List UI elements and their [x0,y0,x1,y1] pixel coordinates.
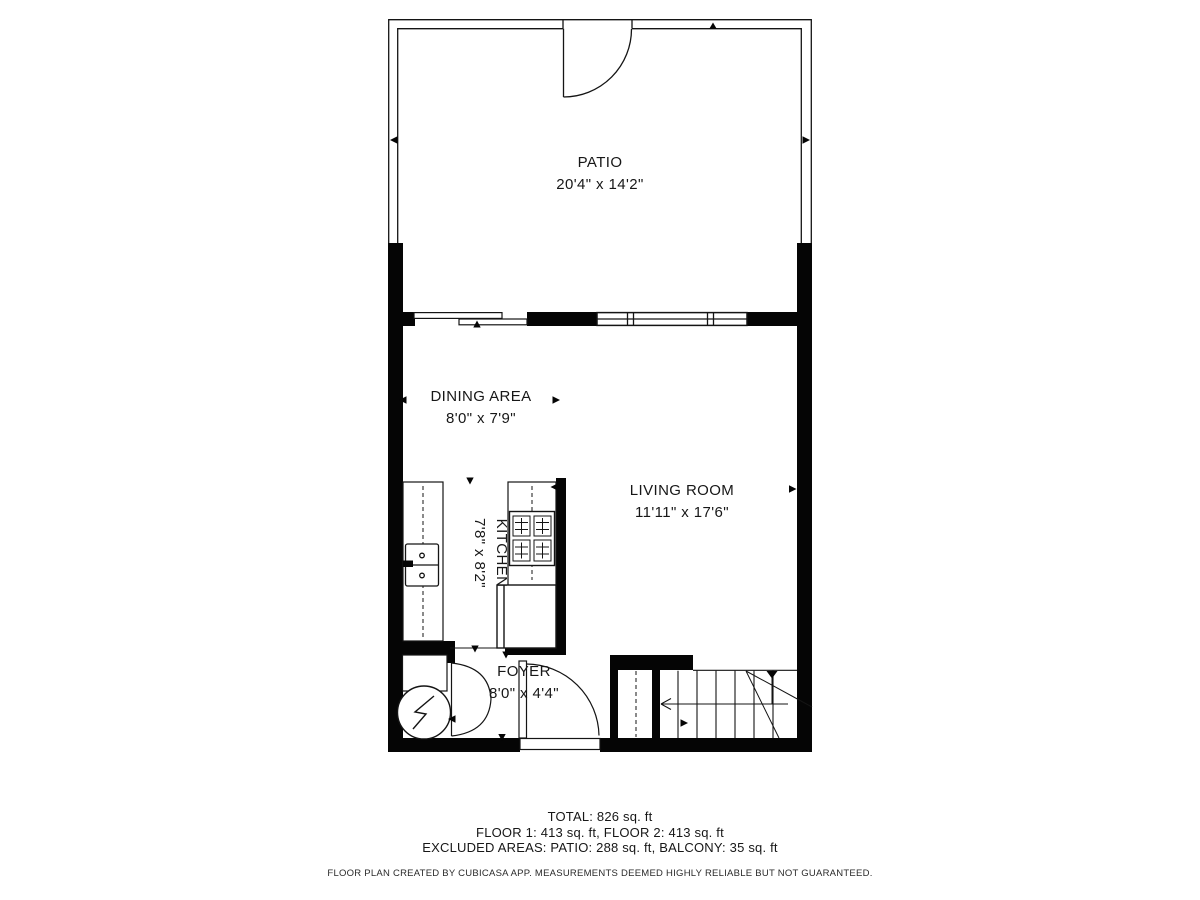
disclaimer-text: FLOOR PLAN CREATED BY CUBICASA APP. MEAS… [0,868,1200,879]
patio-gate-door-icon [564,29,632,97]
dimension-arrow-icons [390,23,810,742]
refrigerator-icon [497,585,556,648]
floor-plan-image: PATIO 20'4" x 14'2" DINING AREA 8'0" x 7… [0,0,1200,900]
room-name: FOYER [489,661,559,683]
room-label-foyer: FOYER 8'0" x 4'4" [489,661,559,705]
sliding-door-icon [414,313,527,325]
room-label-patio: PATIO 20'4" x 14'2" [556,152,643,196]
room-dimensions: 8'0" x 4'4" [489,683,559,705]
closet-double-door-icon [452,663,492,736]
room-name: KITCHEN [490,518,512,588]
room-name: DINING AREA [430,386,531,408]
window-icon [597,313,747,326]
summary-floors: FLOOR 1: 413 sq. ft, FLOOR 2: 413 sq. ft [0,825,1200,840]
room-name: LIVING ROOM [630,480,734,502]
room-label-kitchen: KITCHEN 7'8" x 8'2" [468,518,512,588]
room-dimensions: 11'11" x 17'6" [630,502,734,524]
sink-icon [403,544,439,586]
patio-walls [389,20,812,250]
stove-icon [510,512,555,566]
water-heater-icon [398,686,451,739]
summary-excluded-areas: EXCLUDED AREAS: PATIO: 288 sq. ft, BALCO… [0,840,1200,855]
floor-plan-drawing [0,0,1200,900]
room-dimensions: 20'4" x 14'2" [556,174,643,196]
room-name: PATIO [556,152,643,174]
room-dimensions: 8'0" x 7'9" [430,408,531,430]
staircase-icon [661,670,812,738]
room-label-dining-area: DINING AREA 8'0" x 7'9" [430,386,531,430]
summary-total: TOTAL: 826 sq. ft [0,809,1200,824]
room-dimensions: 7'8" x 8'2" [468,518,490,588]
room-label-living-room: LIVING ROOM 11'11" x 17'6" [630,480,734,524]
